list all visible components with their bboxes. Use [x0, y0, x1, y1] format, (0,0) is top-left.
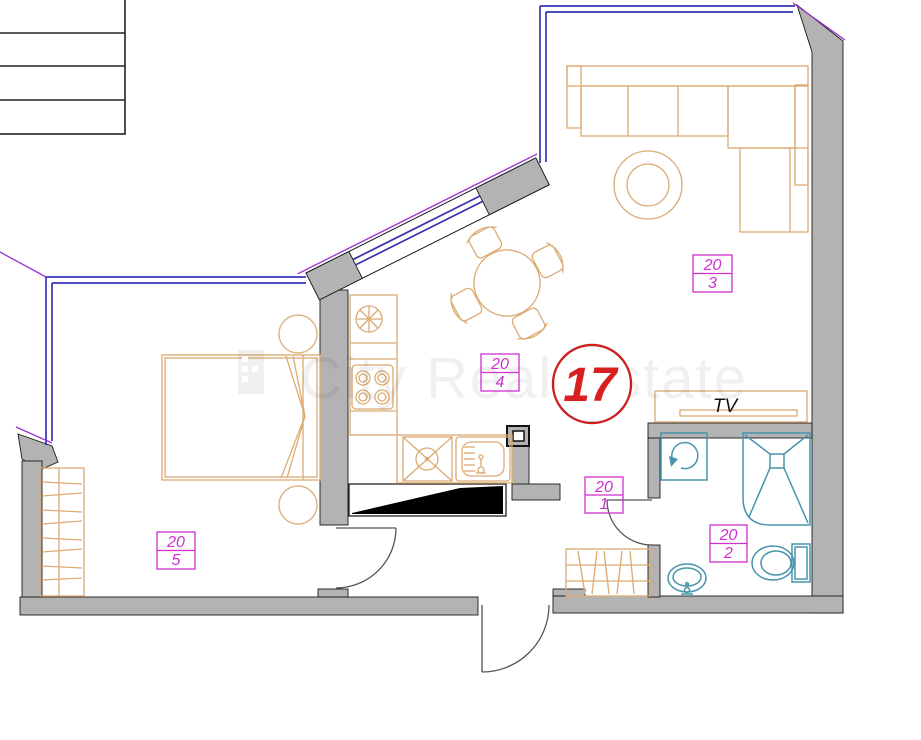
wall-bathroom-left-upper [648, 438, 660, 498]
apartment-number-badge: 17 [553, 345, 631, 423]
exterior-wall-bottom-left [20, 597, 478, 615]
floor-plan: City Real Estate 20 3 20 4 20 5 20 1 20 … [0, 0, 921, 740]
unit-label-room: 4 [496, 374, 505, 391]
unit-label-20-2: 20 2 [710, 525, 747, 562]
apartment-number: 17 [563, 359, 619, 412]
door-stop-right [553, 589, 585, 596]
dishwasher [403, 437, 452, 481]
dining-chair [464, 222, 506, 261]
unit-label-building: 20 [166, 534, 185, 551]
washing-machine [661, 433, 707, 480]
bathroom-fixtures [661, 433, 810, 594]
unit-label-building: 20 [719, 527, 738, 544]
sofa [567, 66, 808, 232]
door-stop-left [318, 589, 348, 597]
dining-table [462, 238, 551, 327]
wall-kitchen-stub [512, 445, 529, 485]
unit-label-20-3: 20 3 [693, 255, 732, 292]
entrance-door [482, 605, 549, 672]
bedroom-door [336, 528, 396, 588]
nightstand [279, 486, 317, 524]
wall-kitchen-foot [512, 484, 560, 500]
unit-label-room: 1 [600, 496, 609, 513]
bedroom-window [46, 277, 306, 445]
watermark-text: City Real Estate [300, 346, 748, 411]
diagonal-window-glass-2 [356, 201, 483, 265]
unit-label-building: 20 [594, 479, 613, 496]
exterior-wall-right [797, 5, 843, 613]
window-sill-line-topleft [0, 252, 46, 277]
doors [336, 500, 652, 672]
unit-label-room: 5 [172, 552, 181, 569]
unit-label-room: 3 [708, 275, 717, 292]
toilet [752, 544, 810, 582]
dining-chair [508, 305, 550, 344]
wardrobe [40, 468, 84, 596]
floor-plan-svg: City Real Estate 20 3 20 4 20 5 20 1 20 … [0, 0, 921, 740]
kitchen-sink [456, 437, 510, 481]
unit-label-20-5: 20 5 [157, 532, 195, 569]
exterior-wall-left [22, 461, 42, 597]
bathroom-door [607, 500, 652, 545]
shower [743, 433, 810, 525]
dining-chair [529, 240, 568, 282]
bathroom-sink [668, 564, 706, 594]
unit-label-building: 20 [490, 356, 509, 373]
diagonal-window-band [298, 154, 552, 304]
exterior-walls [18, 5, 843, 615]
shaft-wedge [349, 484, 506, 516]
wall-bathroom-top [648, 423, 812, 438]
unit-label-20-1: 20 1 [585, 477, 623, 513]
kitchen-fan [356, 306, 382, 332]
tv-label: TV [713, 396, 740, 417]
coffee-table [614, 151, 682, 219]
dining-chair [446, 284, 485, 326]
unit-label-building: 20 [703, 257, 722, 274]
livingroom-window [540, 6, 795, 163]
staircase [0, 0, 125, 134]
unit-label-room: 2 [723, 545, 733, 562]
exterior-wall-bottom-right [553, 596, 843, 613]
